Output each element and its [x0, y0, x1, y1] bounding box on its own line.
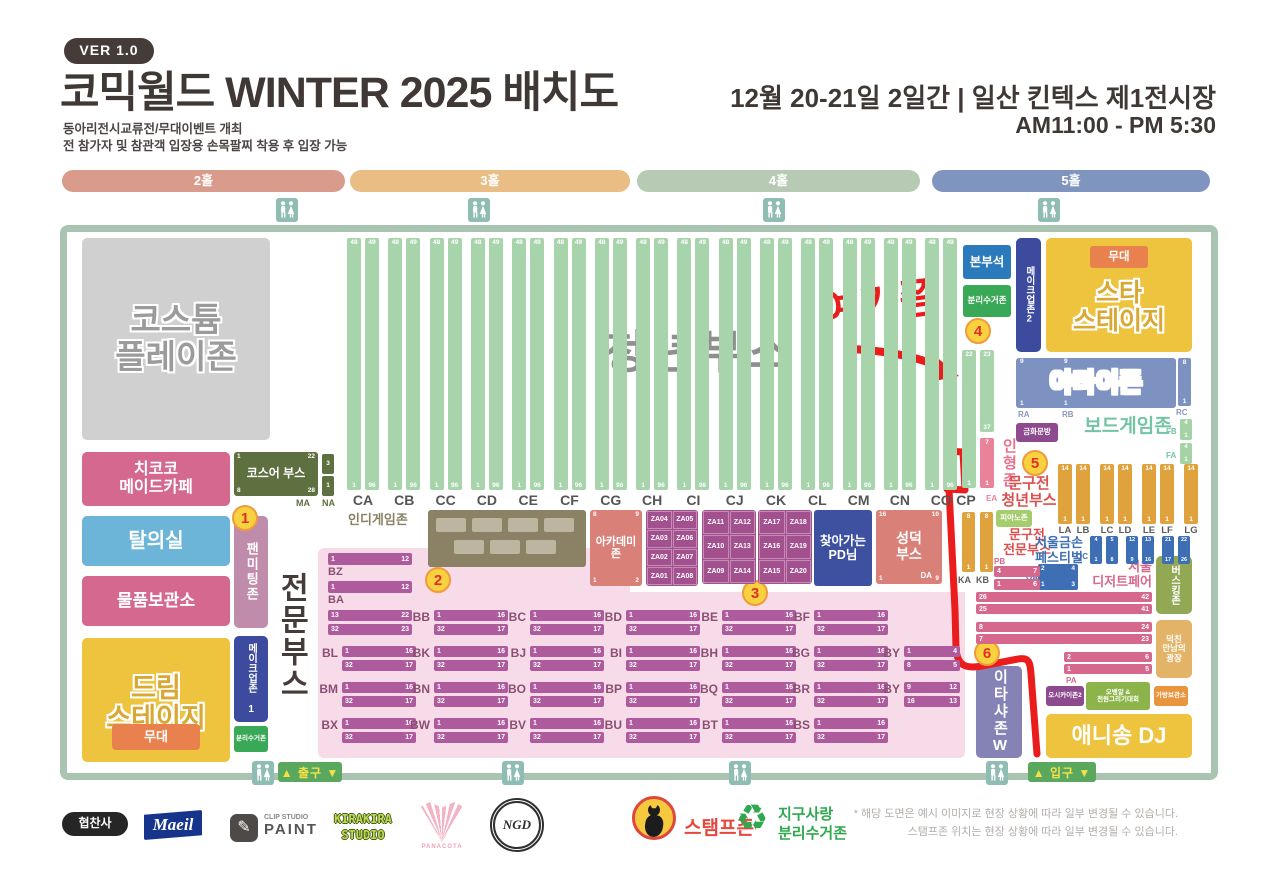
row-code-kb: KB: [976, 576, 989, 585]
booth-number: 17: [689, 626, 697, 633]
za-booth-cell: ZA20: [786, 560, 812, 583]
oshikai-zone: 오시카이존2: [1046, 686, 1084, 706]
booth-number: 14: [1184, 465, 1198, 472]
geumson-column: 41: [1090, 536, 1102, 564]
booth-number: 1: [817, 612, 821, 619]
youth-column-CL: 481: [801, 238, 815, 490]
booth-label-BE: BE: [690, 611, 718, 623]
booth-number: 17: [405, 662, 413, 669]
booth-number: 1: [725, 684, 729, 691]
maeil-logo: Maeil: [144, 810, 202, 840]
booth-number: 96: [489, 482, 503, 489]
booth-number: 32: [725, 626, 733, 633]
youth-column-label-CJ: CJ: [719, 492, 751, 508]
booth-row-BK: 3217: [434, 660, 508, 671]
booth-number: 48: [925, 239, 939, 246]
booth-number: 26: [979, 594, 987, 601]
booth-number: 1: [1142, 516, 1156, 523]
recycle-zone-left: 분리수거존: [234, 726, 268, 752]
booth-number: 49: [530, 239, 544, 246]
youth-column-CB: 481: [388, 238, 402, 490]
booth-label-BC: BC: [498, 611, 526, 623]
booth-number: 1: [629, 720, 633, 727]
booth-number: 32: [629, 626, 637, 633]
booth-number: 1: [980, 480, 994, 487]
booth-number: 32: [437, 662, 445, 669]
booth-row-BH: 3217: [722, 660, 796, 671]
booth-number: 4: [1090, 537, 1102, 543]
restroom-icon: [252, 761, 274, 785]
youth-column-CA: 4996: [365, 238, 379, 490]
dessert-fair-row: 824: [976, 622, 1152, 632]
booth-row-BN: 3217: [434, 696, 508, 707]
booth-number: 1: [347, 482, 361, 489]
youth-column-CC: 4996: [448, 238, 462, 490]
subtitle-line2: 전 참가자 및 참관객 입장용 손목팔찌 착용 후 입장 가능: [63, 135, 347, 154]
booth-number: 32: [437, 734, 445, 741]
booth-row-BU: 3217: [626, 732, 700, 743]
booth-label-BG: BG: [782, 647, 810, 659]
booth-number: 16: [907, 698, 915, 705]
hall-tab: 2홀: [62, 170, 345, 192]
booth-number: 1: [843, 482, 857, 489]
stationery-column-LG: 141: [1184, 464, 1198, 524]
booth-row-BT: 3217: [722, 732, 796, 743]
booth-number: 1: [533, 720, 537, 727]
booth-number: 22: [962, 351, 976, 358]
restroom-icon: [729, 761, 751, 785]
maid-cafe-zone: 치코코 메이드카페: [82, 452, 230, 506]
za-booth-cell: ZA16: [759, 535, 785, 558]
corner-number: 1: [1020, 401, 1024, 408]
booth-number: 32: [533, 698, 541, 705]
booth-number: 48: [388, 239, 402, 246]
circle-number-5: 5: [1022, 450, 1048, 476]
booth-number: 12: [1126, 537, 1138, 543]
booth-row-BS: 3217: [814, 732, 888, 743]
booth-number: 26: [1178, 557, 1190, 563]
booth-number: 13: [949, 698, 957, 705]
booth-number: 17: [785, 626, 793, 633]
booth-row-BA2: 3223: [328, 624, 412, 635]
booth-number: 24: [1141, 624, 1149, 631]
booth-number: 17: [593, 734, 601, 741]
booth-number: 17: [497, 626, 505, 633]
dream-stage-platform: 무대: [112, 724, 200, 750]
booth-number: 49: [613, 239, 627, 246]
booth-number: 12: [949, 684, 957, 691]
booth-number: 48: [801, 239, 815, 246]
booth-row-BX: 3217: [342, 732, 416, 743]
booth-number: 17: [877, 698, 885, 705]
clip-studio-top: CLIP STUDIO: [264, 814, 318, 821]
youth-column-CA: 481: [347, 238, 361, 490]
youth-column-CM: 481: [843, 238, 857, 490]
corner-number: 16: [879, 512, 886, 519]
booth-number: 32: [533, 626, 541, 633]
youth-column-CN: 481: [884, 238, 898, 490]
corner-number: 22: [308, 454, 315, 461]
booth-label-BU: BU: [594, 719, 622, 731]
dessert-fair-row: 2642: [976, 592, 1152, 602]
obangal-contest-zone: 오뱅알 & 천원그리기대회: [1086, 682, 1150, 710]
footnote: * 해당 도면은 예시 이미지로 현장 상황에 따라 일부 변경될 수 있습니다…: [700, 806, 1178, 841]
booth-number: 16: [1142, 557, 1154, 563]
booth-row-BG: 3217: [814, 660, 888, 671]
booth-number: 17: [785, 662, 793, 669]
cosplayer-booth-label: 코스어 부스: [247, 467, 306, 480]
booth-number: 7: [980, 439, 994, 446]
indie-game-table: [454, 540, 484, 554]
booth-number: 5: [1145, 666, 1149, 673]
booth-row-BJ: 116: [530, 646, 604, 657]
booth-number: 16: [877, 720, 885, 727]
board-game-zone-label: 보드게임존: [1078, 417, 1178, 437]
sponsor-label: 협찬사: [62, 812, 128, 836]
booth-number: 96: [778, 482, 792, 489]
row-code-rb: RB: [1062, 411, 1074, 419]
piano-zone: 피아노존: [996, 510, 1032, 527]
youth-column-label-CI: CI: [677, 492, 709, 508]
stationery-pro-row-PB: 16: [994, 579, 1040, 590]
dessert-fair-label: 서울 디저트페어: [1086, 560, 1152, 590]
booth-number: 32: [629, 662, 637, 669]
booth-number: 8: [1178, 359, 1191, 366]
booth-number: 1: [925, 482, 939, 489]
booth-number: 49: [943, 239, 957, 246]
youth-column-CL: 4996: [819, 238, 833, 490]
indie-game-table: [544, 518, 574, 532]
booth-number: 41: [1141, 606, 1149, 613]
booth-number: 8: [979, 624, 983, 631]
corner-number: 8: [593, 512, 597, 519]
row-code-pb: PB: [994, 558, 1005, 566]
stationery-column-LA: 141: [1058, 464, 1072, 524]
booth-number: 32: [345, 698, 353, 705]
column-label-LD: LD: [1117, 526, 1133, 536]
booth-number: 32: [533, 734, 541, 741]
booth-number: 32: [629, 698, 637, 705]
booth-number: 96: [365, 482, 379, 489]
booth-row-BU: 116: [626, 718, 700, 729]
booth-number: 48: [471, 239, 485, 246]
booth-number: 32: [817, 662, 825, 669]
youth-column-label-CN: CN: [884, 492, 916, 508]
booth-number: 96: [448, 482, 462, 489]
geumson-festival-label: 서울금손 페스티벌: [1030, 536, 1088, 566]
youth-column-CD: 4996: [489, 238, 503, 490]
booth-number: 14: [1100, 465, 1114, 472]
date-venue: 12월 20-21일 2일간 | 일산 킨텍스 제1전시장: [700, 78, 1216, 115]
youth-column-label-CC: CC: [430, 492, 462, 508]
column-label-LF: LF: [1159, 526, 1175, 536]
za-booth-cell: ZA13: [730, 535, 756, 558]
dessert-fair-row: 2541: [976, 604, 1152, 614]
booth-label-BJ: BJ: [498, 647, 526, 659]
costume-play-zone: 코스튬 플레이존: [82, 238, 270, 440]
booth-row-BC: 3217: [530, 624, 604, 635]
indie-game-table: [508, 518, 538, 532]
youth-column-CG: 481: [595, 238, 609, 490]
booth-number: 17: [877, 734, 885, 741]
za-booth-cell: ZA08: [673, 567, 698, 585]
booth-number: 49: [654, 239, 668, 246]
booth-number: 1: [331, 584, 335, 591]
visiting-pd-zone: 찾아가는 PD님: [814, 510, 872, 586]
booth-number: 49: [695, 239, 709, 246]
booth-row-BD: 3217: [626, 624, 700, 635]
hall-tab: 4홀: [637, 170, 920, 192]
booth-number: 48: [884, 239, 898, 246]
za-booth-cell: ZA02: [647, 549, 672, 567]
za-booth-cell: ZA10: [703, 535, 729, 558]
booth-number: 8: [980, 513, 993, 520]
board-game-strip-FA: 41: [1180, 443, 1192, 464]
seongdeok-booth: 성덕 부스 DA 161019: [876, 510, 942, 584]
geumson-column: 2226: [1178, 536, 1190, 564]
corner-number: 9: [635, 512, 639, 519]
booth-number: 17: [497, 662, 505, 669]
row-code-fb: FB: [1166, 428, 1177, 436]
youth-column-CF: 481: [554, 238, 568, 490]
booth-column-RC: 81: [1178, 358, 1191, 406]
booth-number: 17: [877, 662, 885, 669]
youth-column-label-CG: CG: [595, 492, 627, 508]
booth-label-BD: BD: [594, 611, 622, 623]
booth-number: 17: [497, 698, 505, 705]
star-stage-label: 스타 스테이지: [1046, 274, 1192, 340]
booth-number: 1: [437, 648, 441, 655]
youth-column-CH: 4996: [654, 238, 668, 490]
youth-column-CO: 481: [925, 238, 939, 490]
booth-label-BN: BN: [402, 683, 430, 695]
booth-number: 1: [719, 482, 733, 489]
column-label-LG: LG: [1183, 526, 1199, 536]
booth-number: 12: [401, 584, 409, 591]
booth-number: 37: [980, 424, 994, 431]
board-game-strip-FB: 41: [1180, 419, 1192, 440]
booth-number: 32: [725, 662, 733, 669]
youth-column-CJ: 4996: [737, 238, 751, 490]
corner-number: 1: [879, 576, 883, 583]
booth-number: 2: [1067, 654, 1071, 661]
booth-number: 1: [331, 556, 335, 563]
booth-row-BF: 3217: [814, 624, 888, 635]
booth-number: 1: [962, 480, 976, 487]
booth-number: 96: [943, 482, 957, 489]
booth-number: 1: [725, 648, 729, 655]
seongdeok-booth-label: 성덕 부스: [896, 531, 922, 562]
youth-column-CJ: 481: [719, 238, 733, 490]
fitting-room: 탈의실: [82, 516, 230, 566]
booth-number: 1: [512, 482, 526, 489]
booth-number: 1: [1160, 516, 1174, 523]
corner-number: 9: [935, 576, 939, 583]
booth-number: 17: [405, 734, 413, 741]
booth-number: 9: [1126, 557, 1138, 563]
booth-number: 32: [725, 734, 733, 741]
corner-number: 10: [932, 512, 939, 519]
youth-column-CN: 4996: [902, 238, 916, 490]
booth-row-BQ: 3217: [722, 696, 796, 707]
booth-number: 32: [817, 734, 825, 741]
booth-number: 21: [1162, 537, 1174, 543]
academy-zone: 아카데미 존 8912: [590, 510, 642, 586]
opening-hours: AM11:00 - PM 5:30: [700, 112, 1216, 139]
booth-number: 32: [725, 698, 733, 705]
booth-number: 96: [654, 482, 668, 489]
youth-column-CK: 4996: [778, 238, 792, 490]
booth-number: 14: [1058, 465, 1072, 472]
corner-number: 2: [635, 578, 639, 585]
page-title: 코믹월드 WINTER 2025 배치도: [60, 58, 618, 120]
itasha-zone: 이타샤존W: [976, 666, 1022, 758]
corner-number: 1: [237, 454, 241, 461]
booth-row-BW: 116: [434, 718, 508, 729]
booth-number: 1: [907, 648, 911, 655]
booth-label-BP: BP: [594, 683, 622, 695]
row-code-ra: RA: [1018, 411, 1030, 419]
booth-number: 1: [533, 612, 537, 619]
youth-column-CH: 481: [636, 238, 650, 490]
booth-number: 96: [530, 482, 544, 489]
row-code-fa: FA: [1166, 452, 1176, 460]
geumhwa-munbang: 금화문방: [1016, 423, 1058, 442]
booth-number: 7: [979, 636, 983, 643]
youth-column-label-CA: CA: [347, 492, 379, 508]
booth-number: 1: [1058, 516, 1072, 523]
booth-number: 96: [902, 482, 916, 489]
geumson-column: 129: [1126, 536, 1138, 564]
booth-number: 8: [1106, 557, 1118, 563]
booth-number: 17: [877, 626, 885, 633]
booth-label-BK: BK: [402, 647, 430, 659]
booth-row-BO: 116: [530, 682, 604, 693]
geumson-column: 2117: [1162, 536, 1174, 564]
busking-zone: 버스킹존: [1156, 556, 1192, 614]
booth-number: 1: [1090, 557, 1102, 563]
booth-label-BQ: BQ: [690, 683, 718, 695]
clip-studio-logo: CLIP STUDIO PAINT: [264, 814, 318, 838]
booth-row-BD: 116: [626, 610, 700, 621]
corner-number: 2: [1041, 566, 1045, 573]
za-booth-cell: ZA11: [703, 511, 729, 534]
booth-label-BZ: BZ: [328, 567, 343, 578]
indie-game-zone-label: 인디게임존: [348, 513, 408, 526]
za-booth-cell: ZA09: [703, 560, 729, 583]
booth-number: 96: [861, 482, 875, 489]
booth-number: 1: [1184, 516, 1198, 523]
booth-number: 49: [572, 239, 586, 246]
booth-number: 49: [365, 239, 379, 246]
booth-row-BY: 912: [904, 682, 960, 693]
booth-row-BO: 3217: [530, 696, 604, 707]
corner-number: 1: [1041, 582, 1045, 589]
corner-number: 4: [1071, 566, 1075, 573]
circle-number-4: 4: [965, 318, 991, 344]
booth-number: 1: [725, 720, 729, 727]
booth-number: 16: [877, 612, 885, 619]
za-booth-cell: ZA18: [786, 511, 812, 534]
booth-number: 1: [1180, 457, 1192, 463]
booth-number: 4: [1180, 444, 1192, 450]
booth-row-BV: 3217: [530, 732, 604, 743]
booth-label-BY: BY: [874, 647, 900, 659]
za-booth-grid: ZA04ZA05ZA03ZA06ZA02ZA07ZA01ZA08: [646, 510, 698, 586]
booth-row-BE: 3217: [722, 624, 796, 635]
booth-row-BZ: 112: [328, 553, 412, 565]
academy-zone-label: 아카데미 존: [596, 536, 636, 561]
booth-number: 96: [406, 482, 420, 489]
restroom-icon: [276, 198, 298, 222]
booth-number: 1: [437, 720, 441, 727]
booth-number: 8: [962, 513, 975, 520]
booth-number: 32: [817, 698, 825, 705]
hq-booth: 본부석: [963, 245, 1011, 279]
booth-row-BY: 14: [904, 646, 960, 657]
circle-number-1: 1: [232, 505, 258, 531]
row-code-rc: RC: [1176, 409, 1188, 417]
booth-number: 12: [401, 556, 409, 563]
youth-column-CF: 4996: [572, 238, 586, 490]
booth-row-BF: 116: [814, 610, 888, 621]
booth-number: 1: [1180, 433, 1192, 439]
footnote-line1: * 해당 도면은 예시 이미지로 현장 상황에 따라 일부 변경될 수 있습니다…: [700, 806, 1178, 824]
booth-column-KA: 81: [962, 512, 975, 572]
booth-number: 5: [1106, 537, 1118, 543]
booth-number: 17: [689, 698, 697, 705]
hall-tab: 5홀: [932, 170, 1210, 192]
booth-number: 1: [437, 684, 441, 691]
dessert-fair-row: 723: [976, 634, 1152, 644]
stationery-pro-row-PB: 47: [994, 566, 1040, 577]
booth-number: 14: [1118, 465, 1132, 472]
booth-row-BI: 116: [626, 646, 700, 657]
cosplayer-side-strip: 3: [322, 454, 334, 474]
booth-number: 49: [902, 239, 916, 246]
youth-column-label-CH: CH: [636, 492, 668, 508]
booth-number: 48: [677, 239, 691, 246]
yatai-zone-label: 야타이존: [1050, 369, 1142, 397]
booth-number: 1: [437, 612, 441, 619]
booth-number: 1: [388, 482, 402, 489]
yatai-zone: 야타이존 9911: [1016, 358, 1176, 408]
booth-row-BI: 3217: [626, 660, 700, 671]
booth-number: 1: [817, 648, 821, 655]
row-code-ea: EA: [986, 495, 997, 503]
kirakira-logo: KIRAKIRA STUDIO: [322, 812, 404, 843]
booth-number: 1: [533, 684, 537, 691]
booth-row-BC: 116: [530, 610, 604, 621]
booth-number: 23: [401, 626, 409, 633]
youth-column-CG: 4996: [613, 238, 627, 490]
youth-column-label-CM: CM: [843, 492, 875, 508]
booth-row-BB: 3217: [434, 624, 508, 635]
fan-meeting-zone: 팬미팅존: [234, 516, 268, 628]
youth-column-CC: 481: [430, 238, 444, 490]
booth-label-BR: BR: [782, 683, 810, 695]
meeting-plaza: 덕친 만남의 광장: [1156, 620, 1192, 678]
booth-number: 6: [1033, 581, 1037, 588]
indie-game-table: [526, 540, 556, 554]
booth-number: 48: [554, 239, 568, 246]
corner-number: 3: [1071, 582, 1075, 589]
booth-number: 1: [345, 684, 349, 691]
youth-column-CB: 4996: [406, 238, 420, 490]
youth-column-label-CL: CL: [801, 492, 833, 508]
corner-number: 8: [237, 488, 241, 495]
booth-number: 1: [801, 482, 815, 489]
